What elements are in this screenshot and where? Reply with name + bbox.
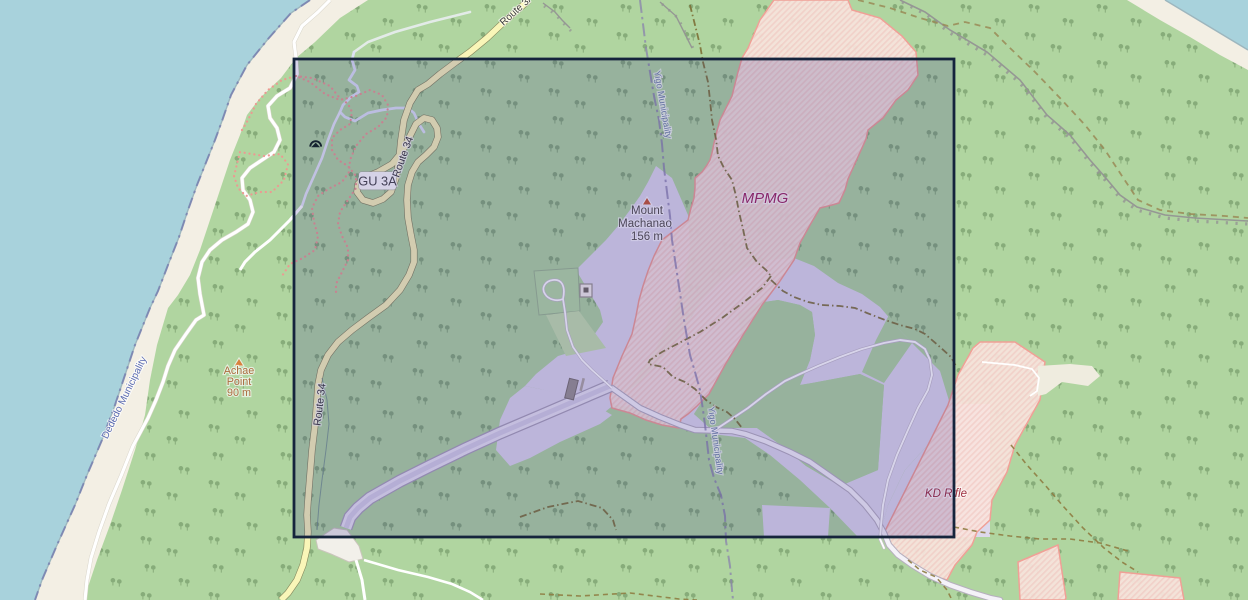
svg-text:90 m: 90 m xyxy=(227,387,251,399)
